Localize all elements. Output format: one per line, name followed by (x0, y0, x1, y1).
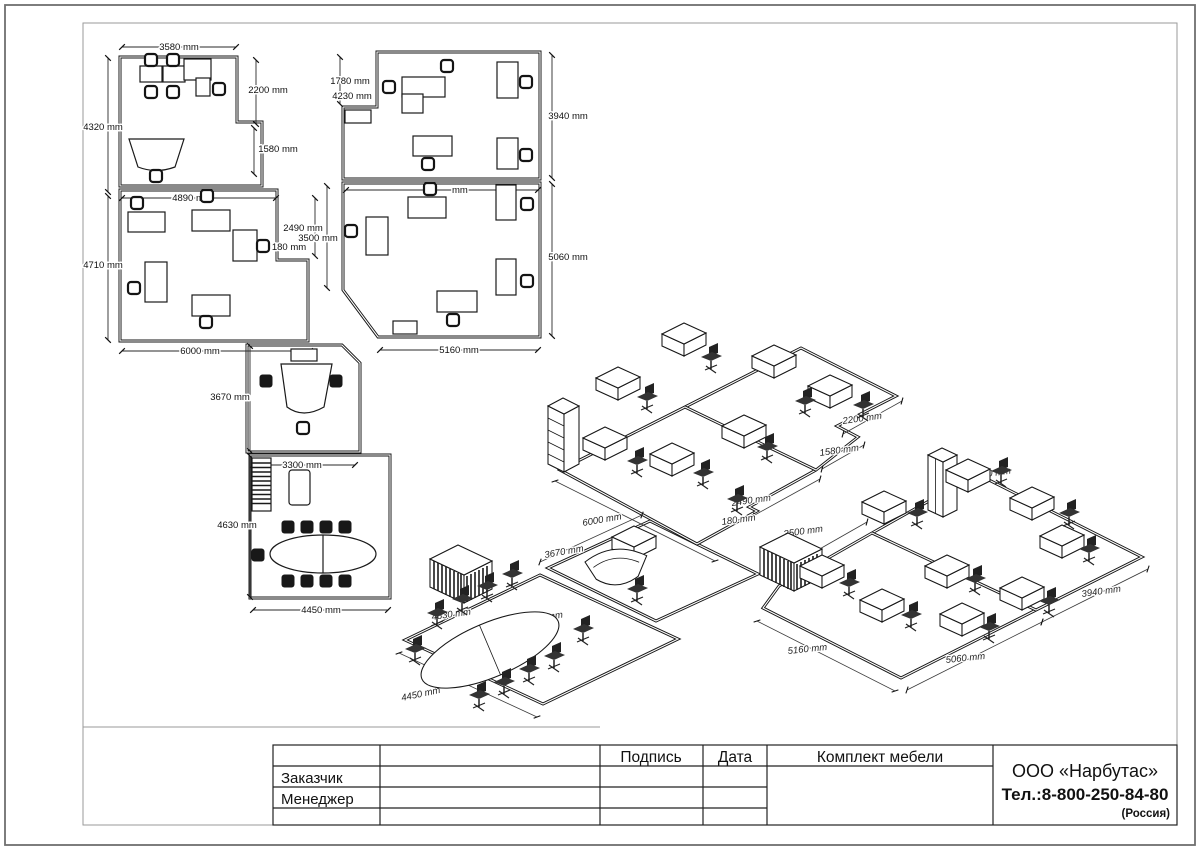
dim-d-left: 4630 mm (217, 520, 257, 531)
dim-e-right: 3940 mm (548, 111, 588, 122)
dim-c-left: 3670 mm (210, 392, 250, 403)
plan-room-a-furniture (129, 54, 225, 182)
iso-views: 6000 mm 2200 mm 1580 mm 2490 mm 180 mm 4… (399, 323, 1148, 717)
dim-f-left: 3500 mm (298, 233, 338, 244)
titleblock-signature-label: Подпись (620, 749, 681, 766)
company-country: (Россия) (1122, 808, 1171, 820)
dim-a-left: 4320 mm (83, 122, 123, 133)
iso-dim-room-f-bottom: 5160 mm (787, 642, 828, 657)
plan-walls (120, 52, 540, 598)
drawing-sheet: 3580 mm 4320 mm 2200 mm 1580 mm 4890 mm … (0, 0, 1200, 850)
dim-b-left: 4710 mm (83, 260, 123, 271)
plan-room-b-furniture (128, 190, 269, 328)
outer-border (5, 5, 1195, 845)
dim-b-bottom: 6000 mm (180, 346, 220, 357)
titleblock-customer-label: Заказчик (281, 770, 343, 787)
company-info: ООО «Нарбутас» Тел.:8-800-250-84-80 (Рос… (1002, 761, 1171, 820)
plan-dimension-labels: 3580 mm 4320 mm 2200 mm 1580 mm 4890 mm … (83, 42, 588, 616)
iso-dim-room-b-step-width: 180 mm (721, 512, 757, 528)
dim-a-top: 3580 mm (159, 42, 199, 53)
title-block: Подпись Дата Комплект мебели Заказчик Ме… (273, 745, 1177, 825)
titleblock-manager-label: Менеджер (281, 791, 354, 808)
floor-plan: 3580 mm 4320 mm 2200 mm 1580 mm 4890 mm … (83, 42, 588, 616)
dim-a-step: 1580 mm (258, 144, 298, 155)
titleblock-project-label: Комплект мебели (817, 749, 943, 766)
dim-d-top: 3300 mm (282, 460, 322, 471)
dim-e-notch-w: 4230 mm (332, 91, 372, 102)
dim-a-right: 2200 mm (248, 85, 288, 96)
iso-dim-room-a-step: 1580 mm (819, 443, 860, 459)
plan-room-e-furniture (345, 60, 532, 170)
iso-right-furniture (760, 448, 1100, 643)
plan-room-f-furniture (345, 183, 533, 334)
company-name: ООО «Нарбутас» (1012, 761, 1158, 781)
iso-dim-room-a-right: 2200 mm (841, 411, 883, 428)
dim-f-right: 5060 mm (548, 252, 588, 263)
iso-dim-room-b-bottom: 6000 mm (582, 511, 623, 529)
sheet-borders (5, 5, 1195, 845)
titleblock-date-label: Дата (718, 749, 753, 766)
dim-d-bottom: 4450 mm (301, 605, 341, 616)
furniture-layout-drawing: 3580 mm 4320 mm 2200 mm 1580 mm 4890 mm … (0, 0, 1200, 850)
iso-dim-reception-left: 3670 mm (544, 543, 585, 561)
dim-f-top-partial: mm (452, 185, 468, 196)
company-phone: Тел.:8-800-250-84-80 (1002, 785, 1169, 804)
dim-f-bottom: 5160 mm (439, 345, 479, 356)
plan-room-d-furniture (252, 458, 377, 588)
dim-e-notch-h: 1780 mm (330, 76, 370, 87)
plan-room-c-furniture (260, 349, 343, 434)
